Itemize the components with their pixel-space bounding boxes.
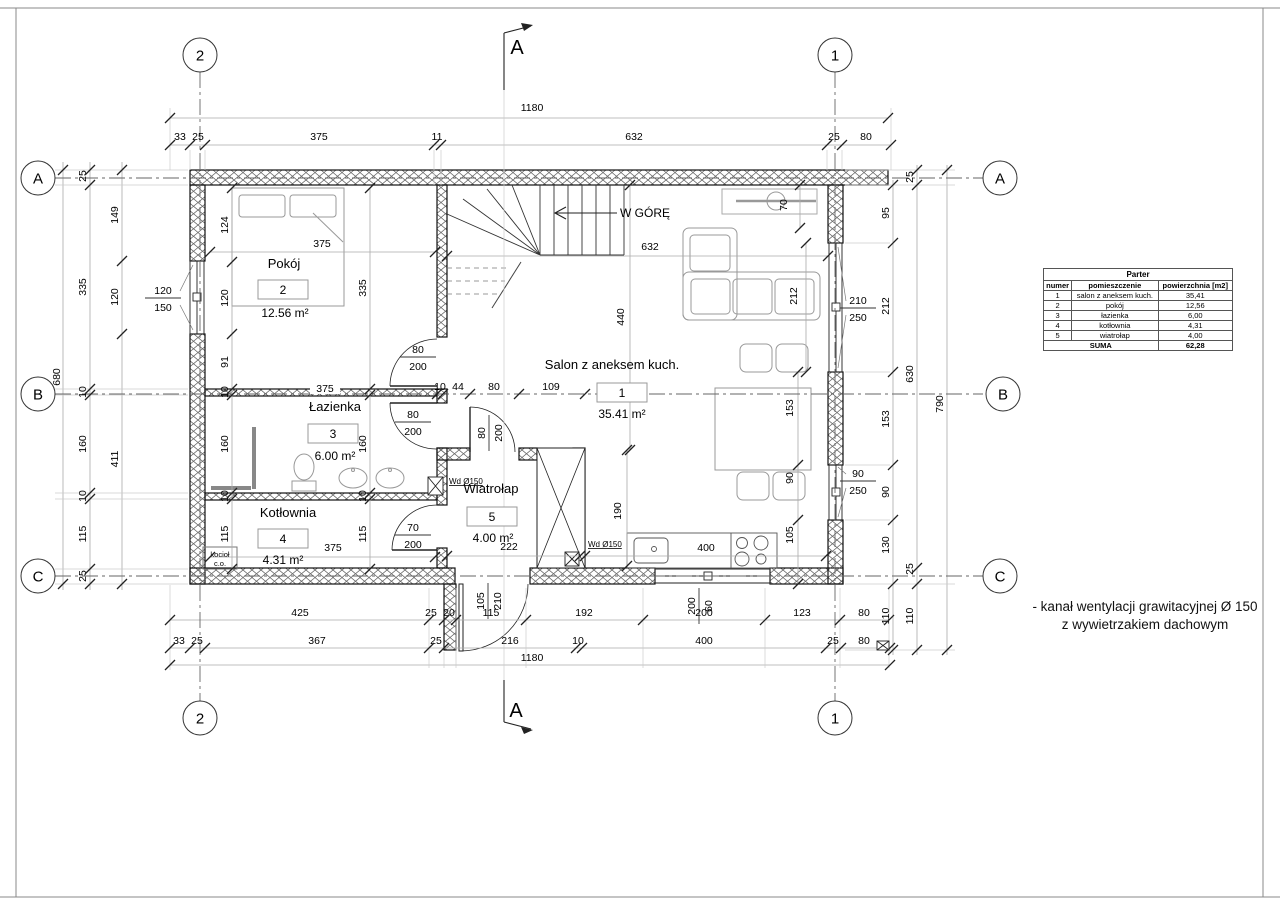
dimension-label: 160: [357, 435, 369, 453]
table-cell: 4: [1044, 321, 1072, 331]
grid-bubble-label: 1: [831, 711, 839, 728]
table-cell: 6,00: [1158, 311, 1233, 321]
table-cell: 1: [1044, 291, 1072, 301]
room-number: 5: [489, 510, 496, 524]
table-sum-value: 62,28: [1158, 341, 1233, 351]
dimension-label: 115: [219, 525, 231, 542]
dimension-label: 33: [174, 131, 186, 143]
note-line-1: - kanał wentylacji grawitacyjnej Ø 150: [1022, 598, 1268, 616]
section-arrow: [521, 23, 533, 734]
pillow: [239, 195, 285, 217]
chimney-block: [537, 448, 585, 568]
table-row: 2pokój12,56: [1044, 301, 1233, 311]
floor-plan-canvas: 1180332537511632258042525201151922001238…: [0, 0, 1280, 905]
dining-table: [715, 388, 811, 470]
dimension-label: 80: [488, 381, 500, 393]
dimension-label: 25: [77, 170, 89, 182]
section-letter: A: [510, 37, 524, 59]
opening-marker: 120150: [145, 285, 181, 314]
dimension-label: 80: [858, 635, 870, 647]
dimension-label: 425: [291, 607, 309, 619]
dimension-label: 130: [880, 536, 892, 554]
toilet: [292, 481, 316, 491]
table-cell: kotłownia: [1072, 321, 1158, 331]
dimension-label: 216: [501, 635, 519, 647]
table-column-header: pomieszczenie: [1072, 281, 1158, 291]
opening-marker-value: 70: [407, 522, 419, 534]
table-cell: 5: [1044, 331, 1072, 341]
dimension-label: 33: [173, 635, 185, 647]
chair: [737, 472, 769, 500]
dimension-label: 440: [615, 308, 627, 326]
grid-bubble-label: B: [998, 387, 1008, 404]
opening-marker-value: 200: [409, 361, 427, 373]
dimension-label: 95: [880, 207, 892, 219]
dimension-label: 110: [880, 607, 892, 624]
grid-bubble-label: C: [33, 569, 44, 586]
room-area: 4.00 m²: [473, 531, 514, 545]
dimension-label: 375: [310, 131, 328, 143]
dimension-label: 124: [219, 216, 231, 234]
dimension-label: 335: [357, 279, 369, 297]
room-name: Łazienka: [309, 399, 362, 414]
grid-bubble-label: 2: [196, 48, 204, 65]
dimension-label: 153: [784, 399, 796, 417]
table-row: 5wiatrołap4,00: [1044, 331, 1233, 341]
opening-marker: 80200: [476, 415, 505, 451]
cooktop-burner: [735, 552, 749, 566]
table-header-row: numerpomieszczeniepowierzchnia [m2]: [1044, 281, 1233, 291]
opening-marker: 70200: [395, 522, 431, 551]
symbol-box: [877, 641, 889, 650]
room-area: 12.56 m²: [261, 306, 308, 320]
annotation-label: W GÓRĘ: [620, 205, 670, 220]
dimension-label: 44: [452, 381, 464, 393]
note-line-2: z wywietrzakiem dachowym: [1022, 616, 1268, 634]
room-number: 4: [280, 532, 287, 546]
opening-marker-value: 150: [154, 302, 172, 314]
legend-note: - kanał wentylacji grawitacyjnej Ø 150 z…: [1022, 598, 1268, 634]
grid-bubble-label: A: [995, 171, 1005, 188]
dimension-label: 680: [51, 368, 63, 386]
opening-marker: 80200: [400, 344, 436, 373]
room-number: 2: [280, 283, 287, 297]
room-area: 6.00 m²: [315, 449, 356, 463]
dimension-label: 411: [109, 450, 121, 467]
opening-marker-value: 80: [407, 409, 419, 421]
room-number: 1: [619, 386, 626, 400]
opening-marker-value: 200: [493, 424, 505, 442]
chair: [740, 344, 772, 372]
opening-marker-value: 250: [849, 312, 867, 324]
table-cell: 4,31: [1158, 321, 1233, 331]
dimension-label: 90: [880, 486, 892, 498]
opening-marker-value: 60: [703, 600, 715, 612]
room-name: Kotłownia: [260, 505, 317, 520]
chair: [776, 344, 808, 372]
dimension-label: 120: [219, 289, 231, 307]
table-cell: wiatrołap: [1072, 331, 1158, 341]
table-cell: salon z aneksem kuch.: [1072, 291, 1158, 301]
dimension-label: 160: [77, 435, 89, 453]
dimension-label: 375: [324, 542, 342, 554]
dimension-label: 160: [219, 435, 231, 453]
opening-marker-value: 200: [404, 426, 422, 438]
dimension-label: 90: [784, 472, 796, 484]
kitchen-sink: [634, 538, 668, 563]
dimension-label: 105: [784, 526, 796, 544]
dimension-label: 115: [77, 525, 89, 542]
floor-plan-drawing: 1180332537511632258042525201151922001238…: [0, 0, 1280, 905]
dimension-label: 20: [443, 607, 455, 619]
opening-marker-value: 80: [412, 344, 424, 356]
dimension-label: 70: [778, 199, 790, 211]
dimension-label: 123: [793, 607, 811, 619]
opening-marker-value: 80: [476, 427, 488, 439]
dimension-label: 335: [77, 278, 89, 296]
dimension-label: 110: [904, 607, 916, 624]
table-cell: łazienka: [1072, 311, 1158, 321]
dimension-label: 190: [612, 502, 624, 520]
dimension-label: 80: [860, 131, 872, 143]
grid-bubble-label: 1: [831, 48, 839, 65]
room-name: Wiatrołap: [464, 481, 519, 496]
opening-marker-value: 90: [852, 468, 864, 480]
dimension-label: 192: [575, 607, 593, 619]
opening-marker: 80200: [395, 409, 431, 438]
opening-marker-value: 250: [849, 485, 867, 497]
table-cell: 2: [1044, 301, 1072, 311]
dimension-label: 212: [788, 287, 800, 305]
table-sum-label: SUMA: [1044, 341, 1159, 351]
annotation-label: Wd Ø150: [588, 540, 622, 549]
table-cell: pokój: [1072, 301, 1158, 311]
grid-bubble-label: C: [995, 569, 1006, 586]
room-name: Pokój: [268, 256, 301, 271]
opening-marker-value: 210: [492, 592, 504, 610]
opening-marker-value: 105: [475, 592, 487, 610]
opening-marker-value: 120: [154, 285, 172, 297]
grid-bubble-label: A: [33, 171, 43, 188]
table-column-header: powierzchnia [m2]: [1158, 281, 1233, 291]
dimension-label: 109: [542, 381, 560, 393]
stairs-up-arrow: [555, 207, 617, 219]
cooktop-burner: [754, 536, 768, 550]
opening-marker: 90250: [840, 468, 876, 497]
dimension-label: 153: [880, 410, 892, 428]
section-letter: A: [509, 700, 523, 722]
cooktop-burner: [737, 538, 748, 549]
pillow: [290, 195, 336, 217]
table-cell: 4,00: [1158, 331, 1233, 341]
dimension-label: 367: [308, 635, 326, 647]
room-area: 4.31 m²: [263, 553, 304, 567]
opening-marker-value: 200: [686, 597, 698, 615]
table-cell: 12,56: [1158, 301, 1233, 311]
annotation-label: c.o.: [214, 559, 226, 568]
opening-marker-value: 200: [404, 539, 422, 551]
shower-screen: [211, 427, 254, 489]
dimension-label: 375: [316, 383, 334, 395]
dimension-label: 375: [313, 238, 331, 250]
dimension-label: 25: [904, 563, 916, 575]
cooktop-burner: [756, 554, 766, 564]
dimension-label: 790: [934, 395, 946, 413]
room-number: 3: [330, 427, 337, 441]
dimension-label: 149: [109, 206, 121, 224]
opening-marker-value: 210: [849, 295, 867, 307]
room-area: 35.41 m²: [598, 407, 645, 421]
dimension-label: 630: [904, 365, 916, 383]
dimension-label: 400: [697, 542, 715, 554]
dimension-label: 120: [109, 288, 121, 306]
grid-bubble-label: B: [33, 387, 43, 404]
table-row: 1salon z aneksem kuch.35,41: [1044, 291, 1233, 301]
dimension-label: 1180: [521, 102, 544, 114]
table-row: 4kotłownia4,31: [1044, 321, 1233, 331]
table-cell: 3: [1044, 311, 1072, 321]
dimension-label: 632: [625, 131, 643, 143]
table-title: Parter: [1044, 269, 1233, 281]
floor-area-table: Parter numerpomieszczeniepowierzchnia [m…: [1043, 268, 1233, 351]
table-cell: 35,41: [1158, 291, 1233, 301]
section-line: [504, 23, 533, 734]
dimension-label: 212: [880, 297, 892, 315]
dimension-label: 80: [858, 607, 870, 619]
table-sum-row: SUMA 62,28: [1044, 341, 1233, 351]
table-row: 3łazienka6,00: [1044, 311, 1233, 321]
dimension-label: 632: [641, 241, 659, 253]
dimension-label: 115: [357, 525, 369, 542]
dimension-label: 91: [219, 356, 231, 368]
table-column-header: numer: [1044, 281, 1072, 291]
stairs: [447, 185, 624, 308]
grid-bubble-label: 2: [196, 711, 204, 728]
dimension-label: 400: [695, 635, 713, 647]
room-name: Salon z aneksem kuch.: [545, 357, 679, 372]
dimension-label: 1180: [521, 652, 544, 664]
